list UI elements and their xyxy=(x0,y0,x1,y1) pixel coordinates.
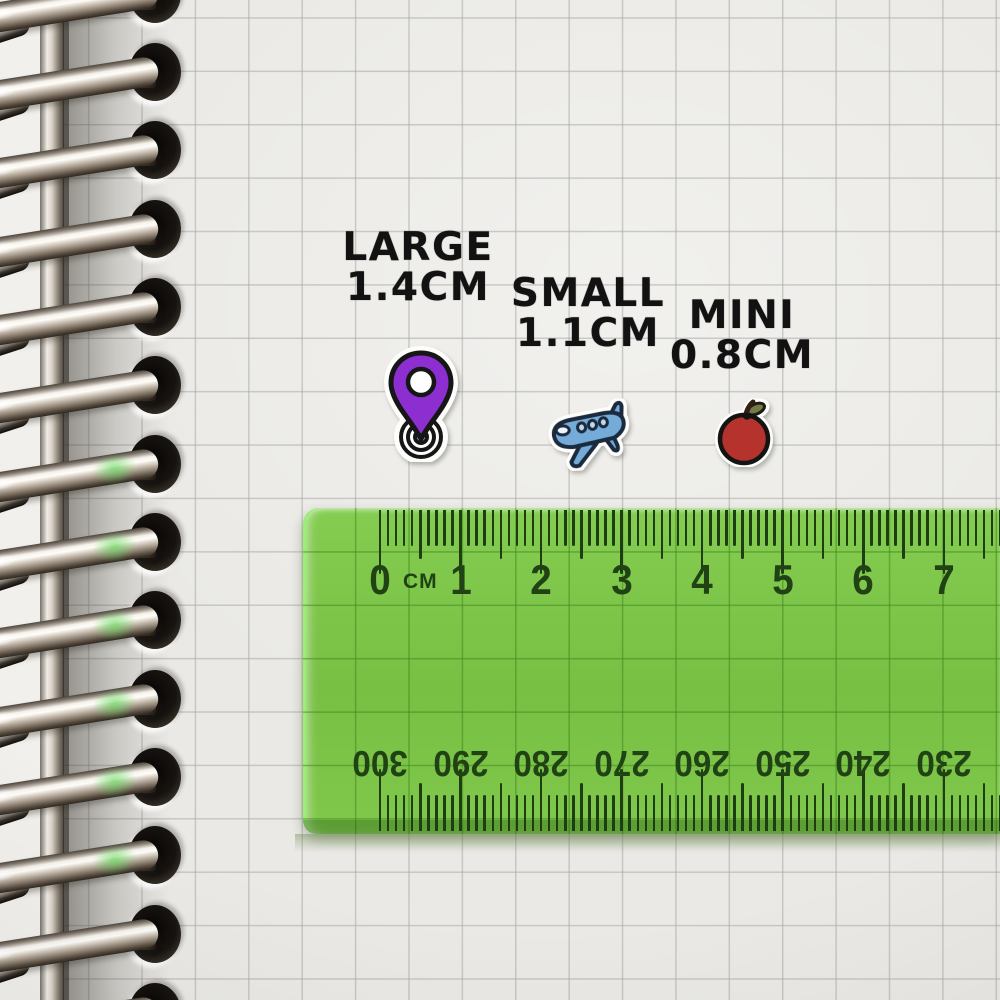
ruler-tick-top xyxy=(806,510,809,546)
size-label-large-value: 1.4CM xyxy=(342,268,493,308)
ruler-cm-number: 7 xyxy=(933,556,954,604)
ruler-tick-top xyxy=(387,510,390,546)
ruler-tick-bottom xyxy=(395,795,398,831)
size-label-large-name: LARGE xyxy=(342,228,493,268)
ruler-tick-top xyxy=(773,510,776,546)
ruler-tick-bottom xyxy=(741,783,744,831)
ruler-tick-top xyxy=(508,510,511,546)
ruler-tick-top xyxy=(419,510,422,559)
ruler-tick-top xyxy=(628,510,631,546)
ruler-cm-number: 2 xyxy=(530,556,551,604)
ruler-tick-bottom xyxy=(467,795,470,831)
ruler-tick-bottom xyxy=(910,795,913,831)
ruler-tick-top xyxy=(870,510,873,546)
notebook-photo: LARGE 1.4CM SMALL 1.1CM MINI 0.8CM xyxy=(0,0,1000,1000)
ruler-tick-bottom xyxy=(790,795,793,831)
ruler-tick-bottom xyxy=(733,795,736,831)
ruler-tick-top xyxy=(435,510,438,546)
ruler-tick-top xyxy=(500,510,503,559)
ruler-tick-top xyxy=(741,510,744,559)
ruler-tick-top xyxy=(749,510,752,546)
ruler-tick-top xyxy=(935,510,938,546)
size-label-small-value: 1.1CM xyxy=(511,314,665,354)
ruler-cm-number: 5 xyxy=(772,556,793,604)
ruler-tick-bottom xyxy=(628,795,631,831)
ruler-tick-top xyxy=(467,510,470,546)
ruler-tick-bottom xyxy=(830,795,833,831)
ruler-mm-number: 280 xyxy=(513,742,568,784)
ruler-tick-top xyxy=(580,510,583,559)
ruler-tick-top xyxy=(733,510,736,546)
ruler-tick-bottom xyxy=(814,795,817,831)
ruler-tick-top xyxy=(830,510,833,546)
ruler-tick-top xyxy=(685,510,688,546)
ruler-tick-bottom xyxy=(894,795,897,831)
ruler-tick-bottom xyxy=(757,795,760,831)
ruler-tick-bottom xyxy=(492,795,495,831)
ruler-tick-top xyxy=(516,510,519,546)
ruler-tick-bottom xyxy=(483,795,486,831)
ruler-tick-bottom xyxy=(645,795,648,831)
ruler-tick-top xyxy=(427,510,430,546)
ruler-tick-bottom xyxy=(806,795,809,831)
ruler-tick-bottom xyxy=(475,795,478,831)
ruler-tick-bottom xyxy=(669,795,672,831)
ruler-tick-top xyxy=(492,510,495,546)
ruler-tick-bottom xyxy=(500,783,503,831)
size-label-small-name: SMALL xyxy=(511,274,665,314)
ruler-tick-bottom xyxy=(773,795,776,831)
size-label-mini-name: MINI xyxy=(670,296,814,336)
ruler-tick-top xyxy=(532,510,535,546)
ruler-tick-top xyxy=(838,510,841,546)
ruler-tick-top xyxy=(451,510,454,546)
size-label-small: SMALL 1.1CM xyxy=(511,274,665,354)
ruler-tick-bottom xyxy=(612,795,615,831)
ruler-cm-number: 4 xyxy=(691,556,712,604)
ruler-tick-top xyxy=(798,510,801,546)
ruler-tick-bottom xyxy=(524,795,527,831)
ruler-tick-bottom xyxy=(451,795,454,831)
ruler-tick-top xyxy=(790,510,793,546)
ruler-mm-number: 300 xyxy=(352,742,407,784)
ruler-tick-bottom xyxy=(580,783,583,831)
ruler-tick-bottom xyxy=(983,783,986,831)
ruler-tick-top xyxy=(910,510,913,546)
ruler-mm-number: 250 xyxy=(755,742,810,784)
ruler-tick-top xyxy=(661,510,664,559)
ruler-tick-bottom xyxy=(959,795,962,831)
size-label-large: LARGE 1.4CM xyxy=(342,228,493,308)
ruler-tick-bottom xyxy=(749,795,752,831)
ruler-tick-top xyxy=(757,510,760,546)
ruler-tick-bottom xyxy=(387,795,390,831)
ruler-tick-bottom xyxy=(572,795,575,831)
ruler-tick-top xyxy=(975,510,978,546)
ruler-tick-bottom xyxy=(975,795,978,831)
ruler-tick-top xyxy=(645,510,648,546)
ruler-tick-bottom xyxy=(637,795,640,831)
ruler-tick-top xyxy=(894,510,897,546)
ruler-tick-bottom xyxy=(822,783,825,831)
ruler-cm-number: 6 xyxy=(853,556,874,604)
ruler-tick-top xyxy=(475,510,478,546)
ruler-tick-bottom xyxy=(588,795,591,831)
ruler-tick-top xyxy=(967,510,970,546)
ruler-tick-bottom xyxy=(693,795,696,831)
ruler-tick-bottom xyxy=(967,795,970,831)
ruler-tick-bottom xyxy=(661,783,664,831)
ruler-tick-top xyxy=(918,510,921,546)
ruler-tick-top xyxy=(725,510,728,546)
ruler-tick-bottom xyxy=(443,795,446,831)
ruler-tick-top xyxy=(717,510,720,546)
ruler: 03001290228032704260525062407230CM xyxy=(303,508,1000,834)
ruler-tick-bottom xyxy=(935,795,938,831)
ruler-mm-number: 290 xyxy=(433,742,488,784)
ruler-tick-top xyxy=(443,510,446,546)
ruler-tick-top xyxy=(693,510,696,546)
ruler-tick-bottom xyxy=(677,795,680,831)
ruler-tick-bottom xyxy=(838,795,841,831)
ruler-tick-top xyxy=(612,510,615,546)
ruler-tick-top xyxy=(926,510,929,546)
ruler-tick-top xyxy=(709,510,712,546)
ruler-tick-bottom xyxy=(951,795,954,831)
ruler-tick-top xyxy=(564,510,567,546)
ruler-tick-bottom xyxy=(709,795,712,831)
ruler-tick-top xyxy=(588,510,591,546)
ruler-shadow xyxy=(295,834,1000,852)
ruler-mm-number: 230 xyxy=(916,742,971,784)
ruler-tick-top xyxy=(951,510,954,546)
ruler-tick-bottom xyxy=(918,795,921,831)
ruler-tick-bottom xyxy=(435,795,438,831)
ruler-cm-number: 1 xyxy=(450,556,471,604)
size-label-mini: MINI 0.8CM xyxy=(670,296,814,376)
ruler-tick-bottom xyxy=(902,783,905,831)
ruler-tick-bottom xyxy=(508,795,511,831)
ruler-tick-top xyxy=(959,510,962,546)
ruler-tick-bottom xyxy=(596,795,599,831)
ruler-tick-top xyxy=(902,510,905,559)
ruler-tick-top xyxy=(814,510,817,546)
ruler-tick-top xyxy=(524,510,527,546)
ruler-tick-bottom xyxy=(419,783,422,831)
ruler-tick-bottom xyxy=(717,795,720,831)
ruler-tick-top xyxy=(604,510,607,546)
ruler-tick-bottom xyxy=(926,795,929,831)
ruler-tick-top xyxy=(669,510,672,546)
ruler-mm-number: 270 xyxy=(594,742,649,784)
size-label-mini-value: 0.8CM xyxy=(670,336,814,376)
ruler-tick-top xyxy=(822,510,825,559)
ruler-tick-top xyxy=(395,510,398,546)
ruler-tick-top xyxy=(653,510,656,546)
ruler-cm-number: 0 xyxy=(369,556,390,604)
ruler-tick-bottom xyxy=(870,795,873,831)
ruler-tick-bottom xyxy=(532,795,535,831)
ruler-tick-top xyxy=(878,510,881,546)
ruler-tick-top xyxy=(983,510,986,559)
ruler-tick-top xyxy=(886,510,889,546)
ruler-unit-label: CM xyxy=(403,570,438,594)
ruler-tick-top xyxy=(765,510,768,546)
ruler-tick-top xyxy=(596,510,599,546)
ruler-tick-bottom xyxy=(564,795,567,831)
ruler-tick-top xyxy=(483,510,486,546)
ruler-grid-seethrough xyxy=(303,508,1000,834)
ruler-tick-bottom xyxy=(653,795,656,831)
ruler-tick-bottom xyxy=(685,795,688,831)
ruler-mm-number: 240 xyxy=(836,742,891,784)
apple-icon xyxy=(713,395,779,467)
ruler-tick-bottom xyxy=(516,795,519,831)
ruler-tick-bottom xyxy=(427,795,430,831)
ruler-mm-number: 260 xyxy=(675,742,730,784)
ruler-tick-top xyxy=(637,510,640,546)
ruler-tick-top xyxy=(677,510,680,546)
ruler-tick-bottom xyxy=(878,795,881,831)
ruler-tick-bottom xyxy=(765,795,768,831)
ruler-tick-bottom xyxy=(725,795,728,831)
ruler-tick-bottom xyxy=(798,795,801,831)
airplane-icon xyxy=(541,398,639,473)
ruler-tick-bottom xyxy=(886,795,889,831)
ruler-tick-bottom xyxy=(604,795,607,831)
location-pin-icon xyxy=(382,344,460,462)
ruler-cm-number: 3 xyxy=(611,556,632,604)
ruler-tick-top xyxy=(572,510,575,546)
